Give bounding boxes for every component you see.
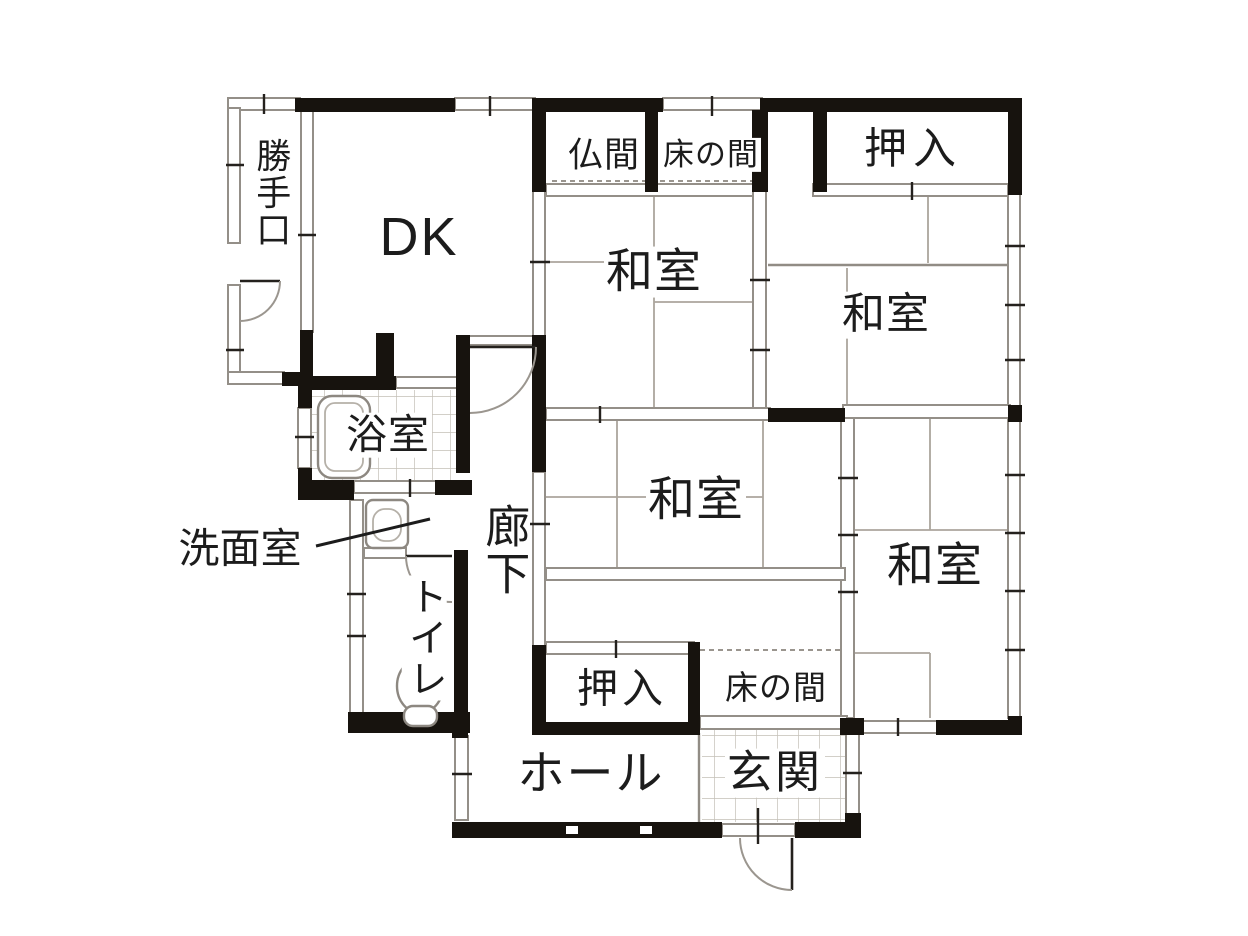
entrance-door (740, 838, 792, 890)
room-label-rouka: 廊下 (478, 502, 529, 598)
room-label-tokonoma-top: 床の間 (661, 138, 761, 172)
room-label-butsuma: 仏間 (566, 137, 642, 175)
room-label-washitsu-top-right: 和室 (840, 292, 932, 339)
room-label-toire: トイレ (402, 576, 447, 701)
room-label-washitsu-bottom-right: 和室 (885, 541, 985, 592)
room-label-katteguchi: 勝手口 (250, 137, 290, 250)
room-label-genkan: 玄関 (725, 749, 825, 798)
room-label-washitsu-center: 和室 (646, 475, 746, 526)
room-label-senmenshitsu: 洗面室 (177, 527, 304, 572)
washbasin-icon (366, 500, 408, 548)
room-label-hall: ホール (516, 749, 667, 800)
floor-plan: 勝手口 DK 仏間 床の間 押入 和室 和室 和室 和室 浴室 洗面室 廊下 ト… (0, 0, 1248, 936)
dk-corridor-door (470, 347, 536, 413)
room-label-oshiire-bottom: 押入 (575, 667, 669, 712)
room-label-dk: DK (377, 208, 460, 266)
katteguchi-door (240, 281, 280, 321)
room-label-tokonoma-bottom: 床の間 (723, 670, 829, 706)
room-label-yokushitsu: 浴室 (344, 413, 432, 458)
room-label-oshiire-top: 押入 (862, 127, 964, 174)
room-label-washitsu-top-center: 和室 (604, 247, 704, 298)
